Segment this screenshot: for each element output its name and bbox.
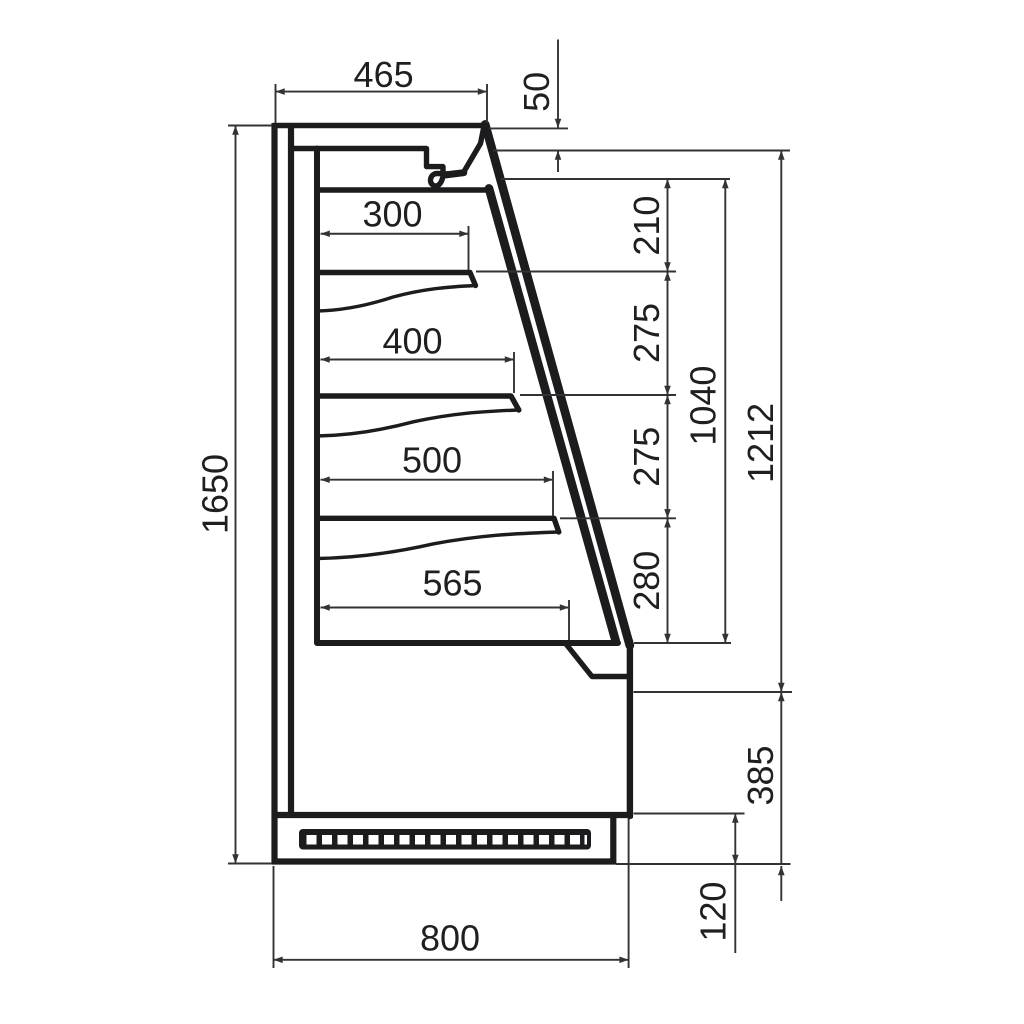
svg-text:275: 275 [626,427,667,487]
svg-text:400: 400 [382,321,442,362]
svg-text:565: 565 [422,563,482,604]
svg-text:1650: 1650 [195,454,236,534]
svg-text:500: 500 [402,440,462,481]
svg-text:275: 275 [626,303,667,363]
svg-text:120: 120 [693,882,734,942]
svg-text:210: 210 [626,196,667,256]
svg-text:800: 800 [420,917,480,958]
svg-text:300: 300 [362,194,422,235]
svg-text:1212: 1212 [740,403,781,483]
svg-text:385: 385 [740,745,781,805]
svg-text:280: 280 [626,551,667,611]
svg-text:50: 50 [516,72,557,112]
svg-text:1040: 1040 [683,366,724,446]
svg-text:465: 465 [354,54,414,95]
